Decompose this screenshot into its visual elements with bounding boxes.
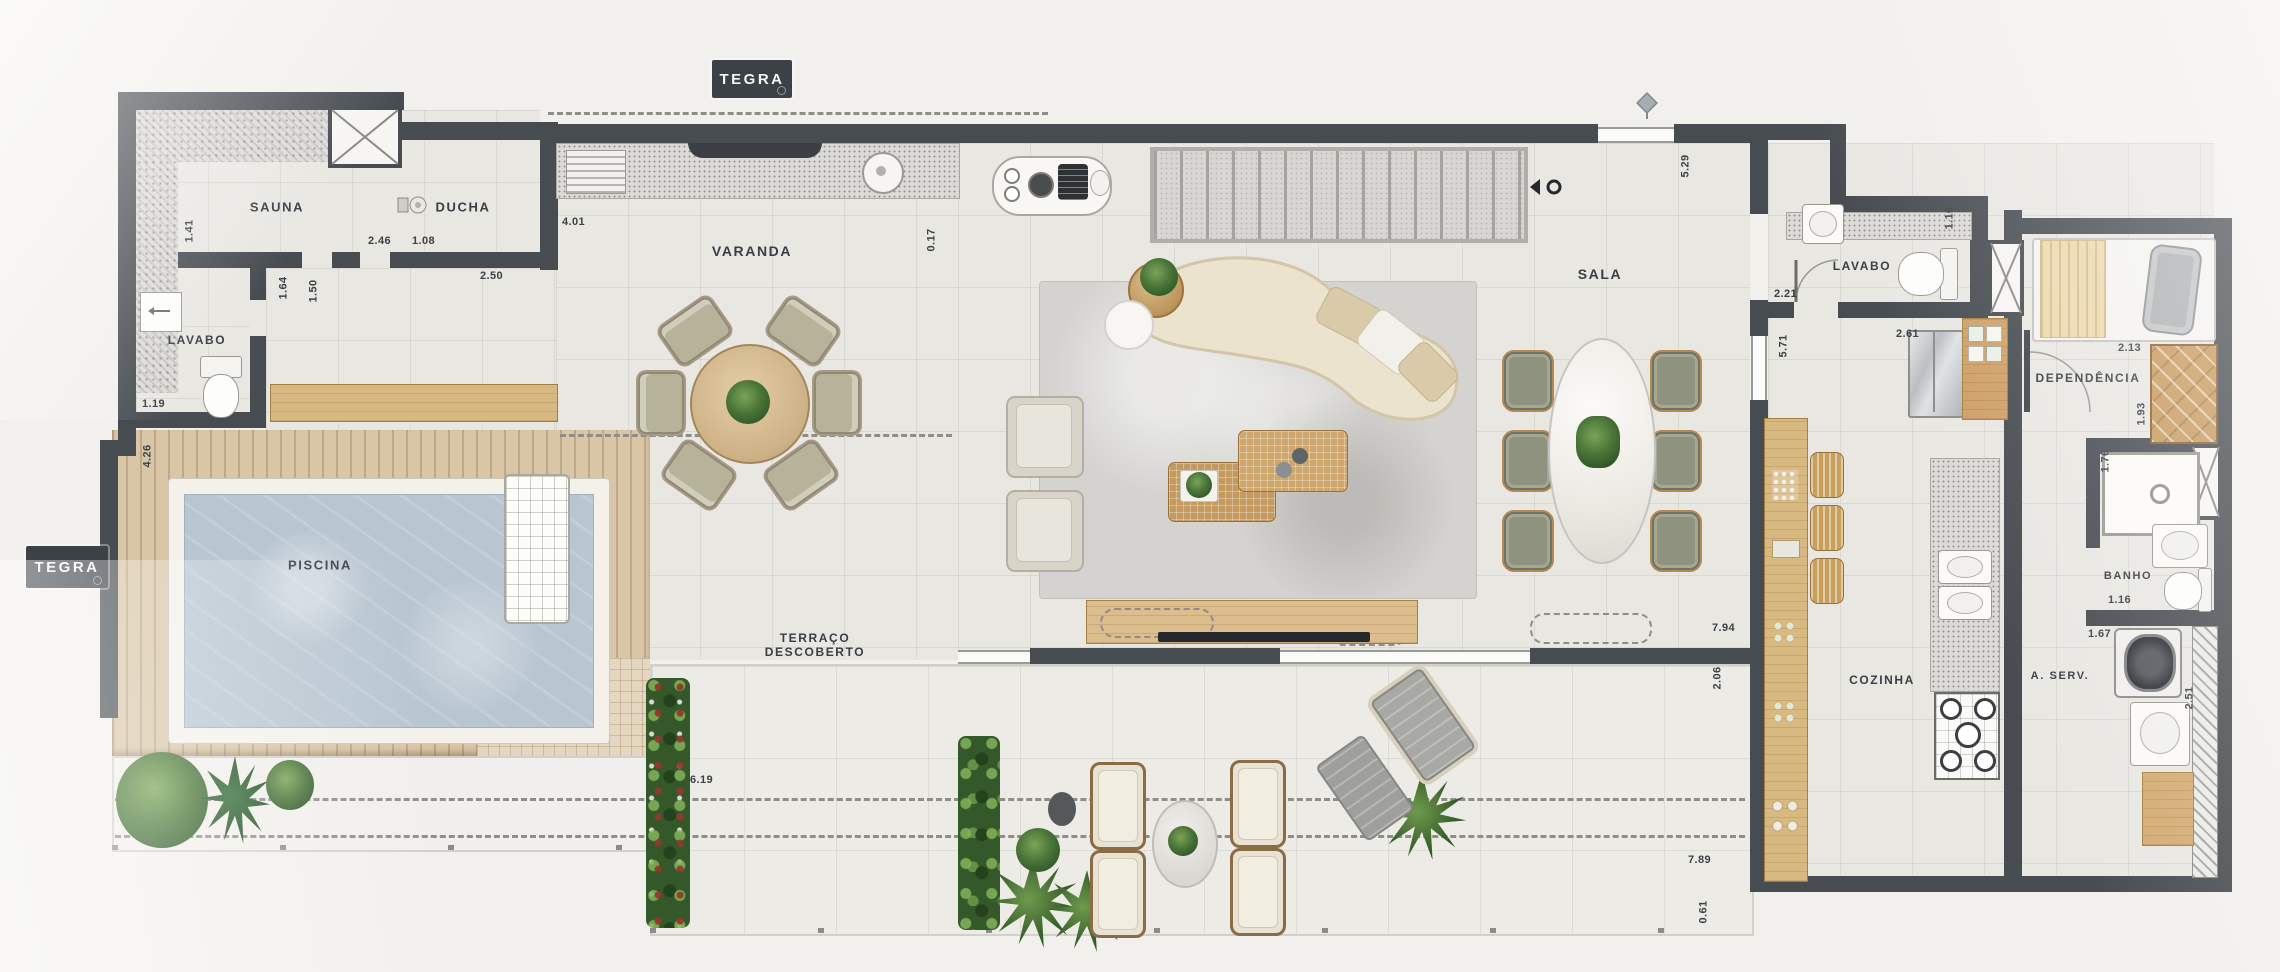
ceiling-projection-dining (1530, 613, 1652, 644)
tegra-logo-text: TEGRA (35, 559, 100, 576)
table-plant (1186, 472, 1212, 498)
wardrobe (2150, 344, 2218, 444)
dining-chair (1504, 352, 1552, 410)
fridge (1908, 330, 1964, 418)
kitchen-sink (1938, 550, 1992, 584)
wall (118, 412, 266, 428)
topiary-plant (1016, 828, 1060, 872)
dining-chair (1504, 432, 1552, 490)
laundry-board (2142, 772, 2194, 846)
dim-lavabo1-width: 1.19 (142, 398, 165, 410)
toilet-bowl (1898, 252, 1944, 296)
wall (1750, 302, 1988, 318)
dim-varanda-width: 4.01 (562, 216, 585, 228)
dim-ducha-width: 2.50 (480, 270, 503, 282)
island-stool (1810, 452, 1844, 498)
bar-burner (1004, 186, 1020, 202)
wall (1970, 196, 1988, 318)
outdoor-stool (1048, 792, 1076, 826)
stair-direction-icon (1528, 178, 1568, 196)
room-label-aserv: A. SERV. (2031, 670, 2090, 682)
kitchen-pass-window (1751, 336, 1767, 400)
island-stool (1810, 558, 1844, 604)
dim-kitchen-width: 2.61 (1896, 328, 1919, 340)
outdoor-armchair (1090, 762, 1146, 850)
wall-stone-hatch-top (136, 110, 330, 162)
outdoor-armchair (1230, 760, 1286, 848)
dim-terrace-width: 7.89 (1688, 854, 1711, 866)
grill-grate (566, 150, 626, 194)
shower-head-icon (398, 192, 432, 218)
table-decor (1276, 462, 1292, 478)
room-label-sala: SALA (1578, 266, 1623, 282)
tegra-logo-text: TEGRA (720, 71, 785, 88)
room-label-lavabo1: LAVABO (168, 333, 227, 347)
wall (1530, 648, 1752, 664)
dim-aserv-depth: 2.51 (2184, 686, 2196, 709)
island-decor (1772, 620, 1798, 646)
island-decor (1772, 700, 1798, 726)
dim-sala-depth: 2.06 (1712, 666, 1724, 689)
side-table-plant (1140, 258, 1178, 296)
round-sink-drain (876, 166, 886, 176)
dim-aserv-width: 1.67 (2088, 628, 2111, 640)
logo-mark-icon (93, 576, 102, 585)
arrow-icon (146, 305, 172, 317)
stove-burner (1940, 698, 1962, 720)
bar-bowl (1090, 170, 1110, 196)
dim-entry-depth: 5.29 (1680, 154, 1692, 177)
wall (392, 122, 558, 140)
cabinet-item (1986, 346, 2002, 362)
side-table-white (1104, 300, 1154, 350)
room-label-varanda: VARANDA (712, 243, 792, 259)
duct-shaft (2192, 626, 2218, 878)
table-plant (726, 380, 770, 424)
dim-shower-depth: 1.76 (2100, 449, 2112, 472)
room-label-lavabo2: LAVABO (1833, 259, 1892, 273)
grill-niche (688, 143, 822, 158)
sala-window (1280, 650, 1530, 664)
terrace-projection-2 (115, 835, 1745, 838)
wall (1030, 648, 1280, 664)
tegra-logo-left: TEGRA (26, 546, 108, 588)
dining-centerpiece (1576, 416, 1620, 468)
bar-burner (1004, 168, 1020, 184)
pool-lounger (504, 474, 570, 624)
bed-pillow (2141, 243, 2203, 337)
laundry-sink (2130, 702, 2190, 766)
armchair-cushion (1016, 498, 1072, 562)
dining-chair (1652, 432, 1700, 490)
shaft-icon (328, 106, 402, 168)
wall (250, 268, 266, 428)
wall (1674, 124, 1760, 143)
topiary-plant (266, 760, 314, 810)
terrace-railing (650, 928, 1750, 933)
stove-burner (1974, 750, 1996, 772)
shower-drain (2150, 484, 2170, 504)
ducha-door-gap (358, 252, 392, 268)
projection-line-top (548, 112, 1048, 115)
stove-burner (1974, 698, 1996, 720)
dim-hall-b: 1.50 (308, 279, 320, 302)
wall (1750, 876, 2232, 892)
banho-sink (2152, 524, 2208, 568)
lavabo1-door-gap (250, 300, 266, 336)
dim-sauna-width: 2.46 (368, 235, 391, 247)
sauna-door-gap (300, 252, 334, 268)
cabinet-item (1968, 346, 1984, 362)
wall (958, 124, 1598, 143)
wall (118, 92, 136, 448)
dim-sauna-side: 1.41 (184, 219, 196, 242)
wall (556, 124, 958, 143)
armchair-cushion (1016, 404, 1072, 468)
dim-banho-width: 1.16 (2108, 594, 2131, 606)
varanda-parapet (958, 650, 1030, 664)
planter-hedge-flowers (646, 678, 690, 928)
outdoor-armchair (1090, 850, 1146, 938)
room-label-piscina: PISCINA (288, 558, 352, 573)
entrance-door (1598, 127, 1674, 143)
tv (1158, 632, 1370, 642)
room-label-terraco-line1: TERRAÇO (765, 631, 865, 645)
dim-dep-depth: 1.93 (2136, 402, 2148, 425)
room-label-banho: BANHO (2104, 570, 2152, 582)
varanda-chair (638, 372, 684, 434)
room-label-terraco-line2: DESCOBERTO (765, 645, 865, 659)
terrace-projection-1 (115, 798, 1745, 801)
dim-ducha-entry: 1.08 (412, 235, 435, 247)
stove-burner (1955, 722, 1981, 748)
wall (2004, 218, 2232, 234)
table-plant (1168, 826, 1198, 856)
dim-deck-depth: 4.26 (142, 444, 154, 467)
washer-drum (2124, 634, 2176, 692)
wall (2086, 610, 2214, 626)
room-label-dependencia: DEPENDÊNCIA (2036, 371, 2141, 385)
room-label-ducha: DUCHA (436, 200, 491, 215)
terrace-left-railing (112, 845, 650, 850)
dim-varanda-gap: 0.17 (926, 228, 938, 251)
logo-mark-icon (777, 86, 786, 95)
room-label-terraco: TERRAÇO DESCOBERTO (765, 631, 865, 659)
stove-burner (1940, 750, 1962, 772)
dim-lavabo2-width: 2.21 (1774, 288, 1797, 300)
dim-sala-width: 7.94 (1712, 622, 1735, 634)
wall (2086, 438, 2100, 548)
floor-plan: PISCINA (0, 0, 2280, 972)
lavabo2-sink (1802, 204, 1844, 244)
fridge-divider (1933, 332, 1935, 412)
dim-hall-depth: 5.71 (1778, 334, 1790, 357)
table-decor (1292, 448, 1308, 464)
island-stool (1810, 505, 1844, 551)
dim-dep-width: 2.13 (2118, 342, 2141, 354)
bar-sink-round (1028, 172, 1054, 198)
kitchen-sink (1938, 586, 1992, 620)
bar-grill (1058, 164, 1088, 200)
staircase (1150, 147, 1528, 243)
varanda-chair (814, 372, 860, 434)
cabinet-item (1986, 326, 2002, 342)
toilet-bowl (2164, 572, 2202, 610)
dim-lavabo2-depth: 1.16 (1944, 206, 1956, 229)
dining-chair (1652, 352, 1700, 410)
shrub-plant (116, 752, 208, 848)
room-label-sauna: SAUNA (250, 200, 304, 215)
shaft-icon (1988, 240, 2024, 316)
bed-blanket (2040, 240, 2106, 338)
island-decor (1772, 470, 1798, 500)
corridor-bench (270, 384, 558, 422)
island-decor (1770, 796, 1800, 836)
lavabo2-door-gap (1794, 302, 1838, 318)
dim-hall-a: 1.64 (278, 276, 290, 299)
dining-chair (1504, 512, 1552, 570)
wall (1830, 196, 1988, 212)
toilet-bowl (203, 374, 239, 418)
dim-terrace-edge: 0.61 (1698, 900, 1710, 923)
entry-direction-icon (1632, 94, 1662, 120)
island-decor (1772, 540, 1800, 558)
outdoor-armchair (1230, 848, 1286, 936)
cabinet-item (1968, 326, 1984, 342)
dim-terraco-width: 6.19 (690, 774, 713, 786)
dining-chair (1652, 512, 1700, 570)
room-label-cozinha: COZINHA (1849, 673, 1915, 687)
tegra-logo-top: TEGRA (712, 60, 792, 98)
